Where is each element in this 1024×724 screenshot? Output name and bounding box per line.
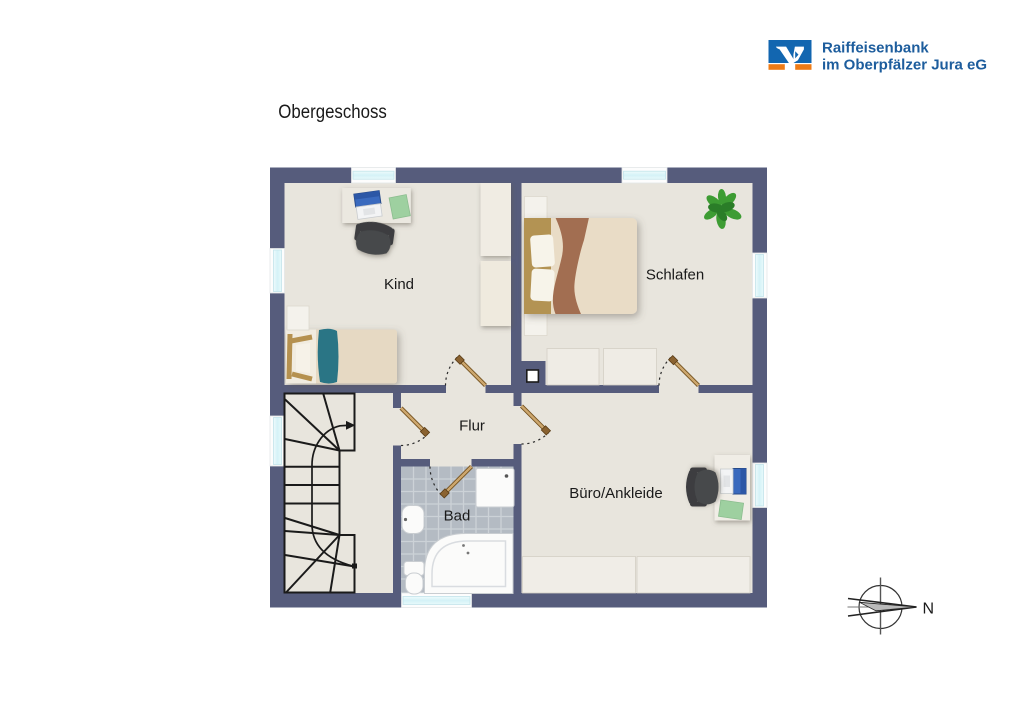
svg-text:Bad: Bad bbox=[444, 508, 471, 525]
svg-text:Kind: Kind bbox=[384, 276, 414, 293]
svg-text:Raiffeisenbank: Raiffeisenbank bbox=[822, 40, 929, 57]
svg-text:N: N bbox=[923, 601, 935, 618]
svg-text:Flur: Flur bbox=[459, 418, 485, 435]
svg-text:Büro/Ankleide: Büro/Ankleide bbox=[569, 485, 662, 502]
svg-text:Obergeschoss: Obergeschoss bbox=[278, 101, 387, 123]
svg-text:im Oberpfälzer Jura eG: im Oberpfälzer Jura eG bbox=[822, 56, 987, 73]
svg-text:Schlafen: Schlafen bbox=[646, 267, 704, 284]
